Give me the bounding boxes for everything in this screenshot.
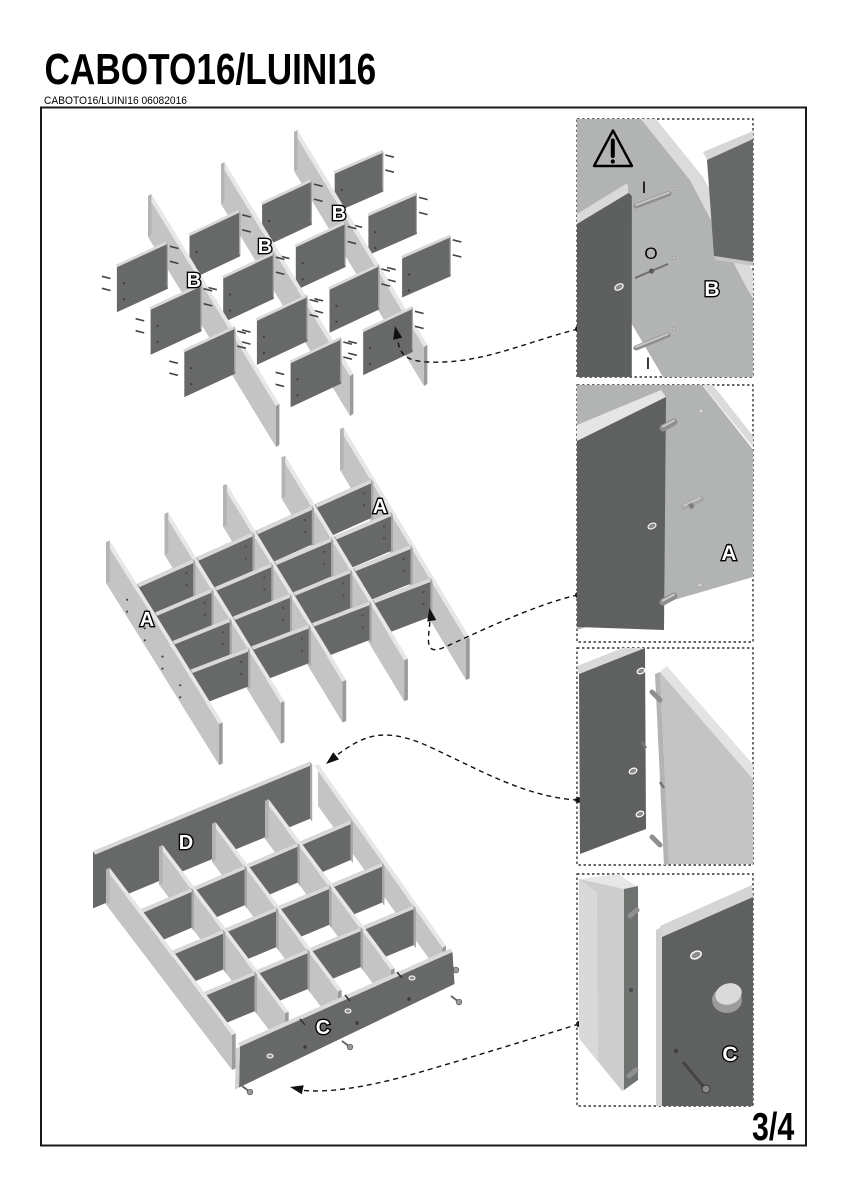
svg-text:B: B — [187, 270, 201, 292]
svg-text:3/4: 3/4 — [752, 1105, 795, 1148]
svg-text:I: I — [642, 178, 647, 197]
svg-text:B: B — [704, 278, 719, 301]
svg-text:A: A — [373, 496, 387, 518]
svg-text:D: D — [179, 832, 193, 854]
svg-text:C: C — [722, 1043, 737, 1066]
svg-text:C: C — [316, 1017, 330, 1039]
svg-text:CABOTO16/LUINI16 06082016: CABOTO16/LUINI16 06082016 — [44, 95, 187, 107]
svg-text:B: B — [332, 203, 346, 225]
svg-text:A: A — [721, 542, 736, 565]
svg-text:O: O — [644, 244, 657, 263]
svg-text:A: A — [140, 609, 154, 631]
svg-text:CABOTO16/LUINI16: CABOTO16/LUINI16 — [45, 45, 377, 94]
svg-text:I: I — [646, 354, 651, 373]
svg-text:B: B — [258, 236, 272, 258]
